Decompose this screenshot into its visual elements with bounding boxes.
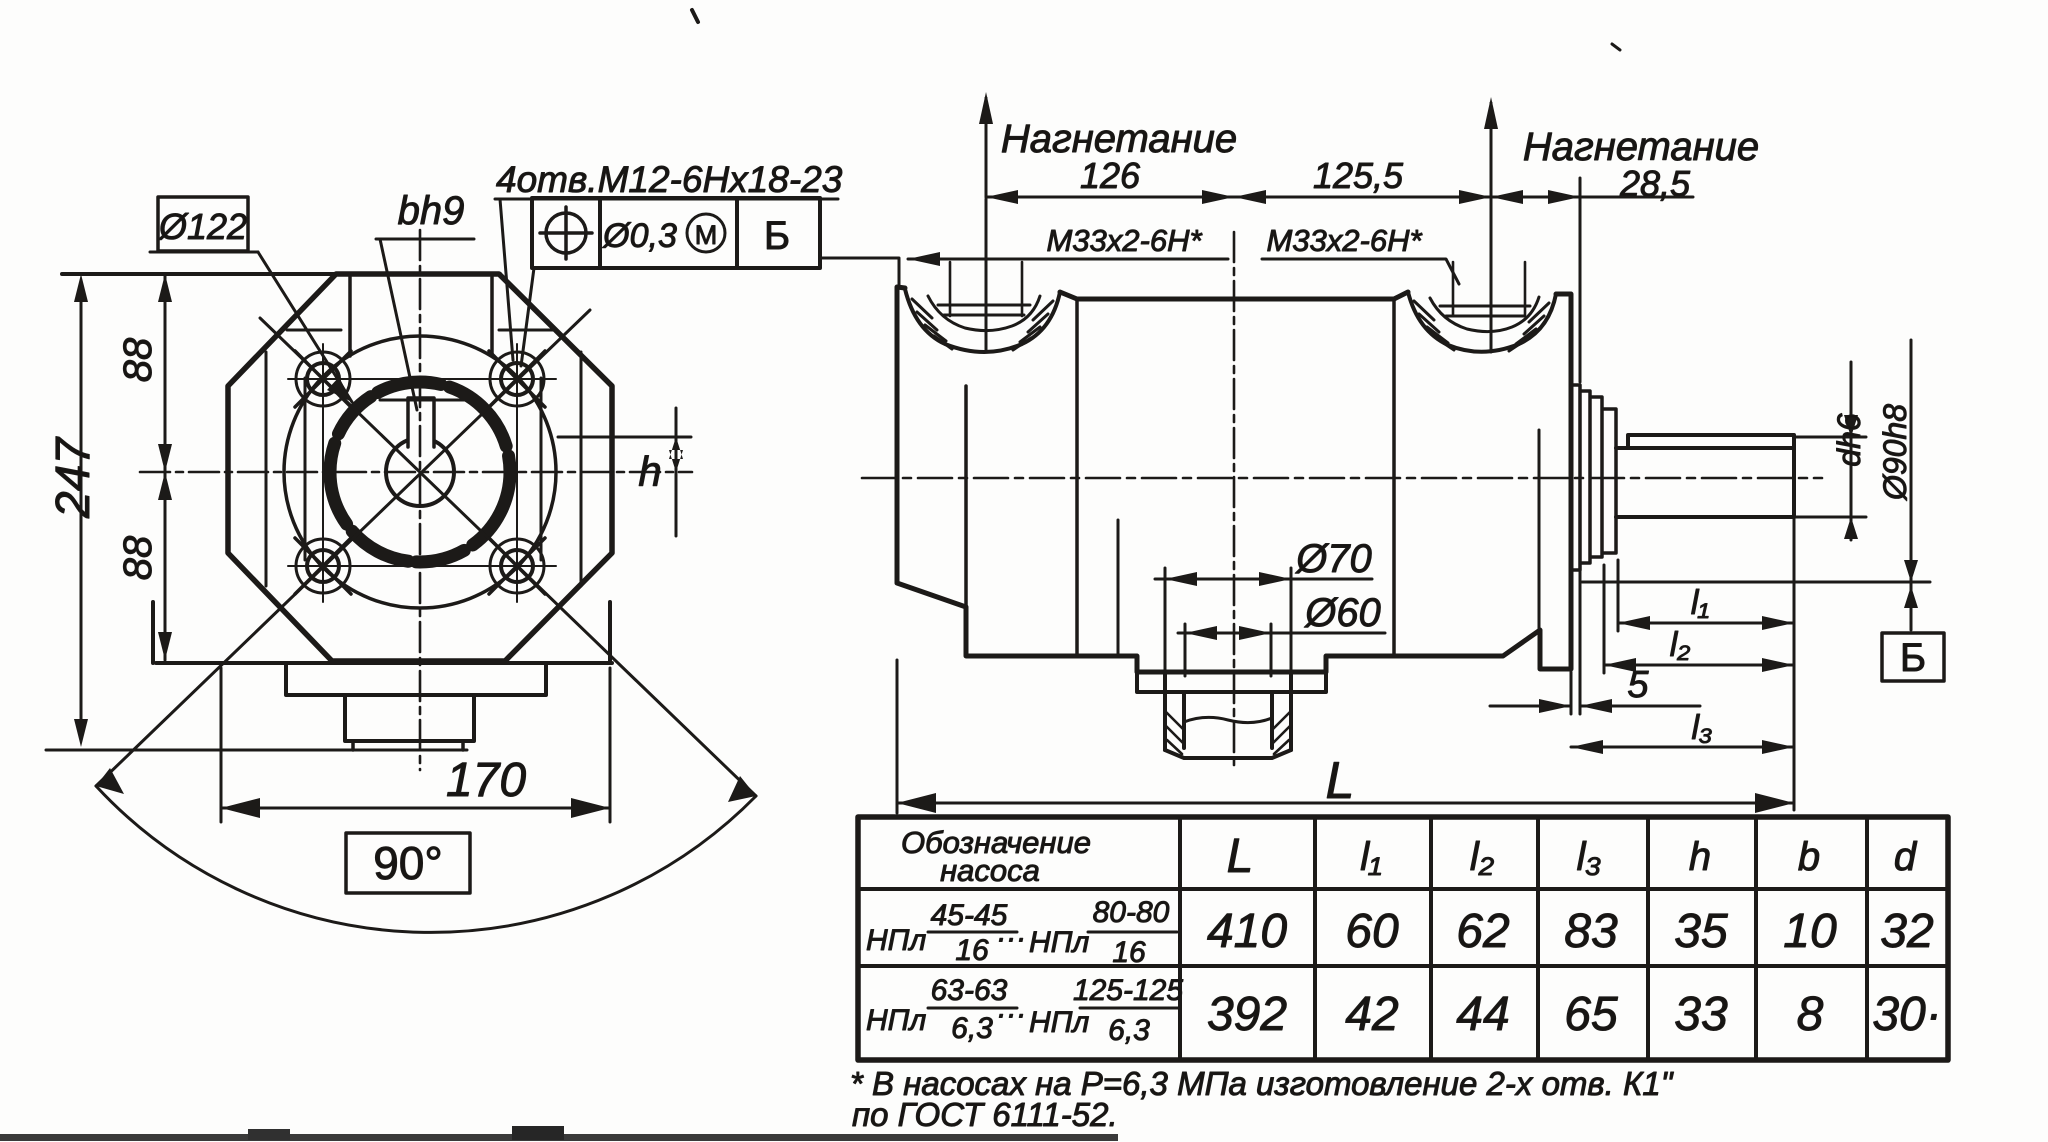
svg-text:16: 16 bbox=[955, 934, 989, 967]
svg-text:НПл: НПл bbox=[866, 924, 926, 957]
svg-text:Ø122: Ø122 bbox=[158, 206, 247, 247]
svg-text:···: ··· bbox=[996, 922, 1026, 955]
svg-text:4отв.М12-6Нх18-23: 4отв.М12-6Нх18-23 bbox=[496, 159, 843, 200]
svg-text:126: 126 bbox=[1080, 155, 1141, 196]
svg-text:88: 88 bbox=[116, 337, 160, 382]
svg-text:bh9: bh9 bbox=[398, 189, 465, 233]
svg-text:35: 35 bbox=[1674, 905, 1728, 958]
svg-text:b: b bbox=[1798, 835, 1820, 879]
svg-text:Б: Б bbox=[764, 214, 790, 258]
svg-text:10: 10 bbox=[1783, 905, 1837, 958]
svg-text:НПл: НПл bbox=[866, 1004, 926, 1037]
svg-text:125,5: 125,5 bbox=[1313, 155, 1404, 196]
svg-text:h: h bbox=[1689, 835, 1711, 879]
svg-text:по ГОСТ 6111-52.: по ГОСТ 6111-52. bbox=[852, 1096, 1118, 1133]
svg-text:90°: 90° bbox=[373, 837, 443, 889]
svg-text:33: 33 bbox=[1674, 988, 1728, 1041]
svg-text:Ø70: Ø70 bbox=[1294, 537, 1372, 581]
svg-text:Ø0,3: Ø0,3 bbox=[602, 217, 677, 255]
svg-text:НПл: НПл bbox=[1029, 926, 1089, 959]
svg-text:83: 83 bbox=[1564, 905, 1618, 958]
svg-text:М: М bbox=[695, 220, 718, 250]
svg-text:80-80: 80-80 bbox=[1093, 896, 1170, 929]
svg-text:30·: 30· bbox=[1872, 988, 1941, 1041]
svg-text:dh6: dh6 bbox=[1831, 413, 1867, 467]
svg-text:l₁: l₁ bbox=[1360, 835, 1382, 879]
svg-text:5: 5 bbox=[1627, 664, 1649, 706]
svg-text:НПл: НПл bbox=[1029, 1006, 1089, 1039]
svg-text:170: 170 bbox=[446, 754, 526, 807]
svg-text:32: 32 bbox=[1880, 905, 1933, 958]
svg-text:l₂: l₂ bbox=[1470, 835, 1494, 879]
svg-text:Ø60: Ø60 bbox=[1303, 591, 1381, 635]
svg-text:28,5: 28,5 bbox=[1619, 163, 1691, 204]
svg-text:88: 88 bbox=[116, 535, 160, 580]
svg-text:8: 8 bbox=[1797, 988, 1824, 1041]
svg-text:М33х2-6Н*: М33х2-6Н* bbox=[1266, 223, 1422, 258]
svg-text:М33х2-6Н*: М33х2-6Н* bbox=[1046, 223, 1202, 258]
svg-text:d: d bbox=[1894, 835, 1918, 879]
svg-text:44: 44 bbox=[1456, 988, 1509, 1041]
svg-text:···: ··· bbox=[996, 998, 1026, 1031]
svg-text:6,3: 6,3 bbox=[1108, 1014, 1150, 1047]
svg-text:42: 42 bbox=[1345, 988, 1398, 1041]
svg-text:L: L bbox=[1326, 752, 1355, 810]
svg-text:L: L bbox=[1227, 830, 1254, 883]
svg-text:65: 65 bbox=[1564, 988, 1618, 1041]
svg-text:16: 16 bbox=[1112, 936, 1146, 969]
svg-text:Ø90h8: Ø90h8 bbox=[1877, 404, 1913, 501]
svg-text:6,3: 6,3 bbox=[951, 1012, 993, 1045]
svg-text:62: 62 bbox=[1456, 905, 1509, 958]
svg-text:h: h bbox=[638, 448, 661, 495]
svg-text:410: 410 bbox=[1207, 905, 1287, 958]
svg-text:насоса: насоса bbox=[940, 853, 1040, 888]
svg-text:125-125: 125-125 bbox=[1073, 974, 1183, 1007]
svg-text:60: 60 bbox=[1345, 905, 1399, 958]
svg-text:392: 392 bbox=[1207, 988, 1287, 1041]
svg-text:247: 247 bbox=[47, 436, 100, 519]
svg-text:l₃: l₃ bbox=[1577, 835, 1602, 879]
svg-text:l₃: l₃ bbox=[1691, 709, 1712, 747]
svg-text:Б: Б bbox=[1900, 636, 1926, 680]
svg-text:l₂: l₂ bbox=[1670, 626, 1691, 664]
svg-text:l₁: l₁ bbox=[1691, 584, 1709, 622]
